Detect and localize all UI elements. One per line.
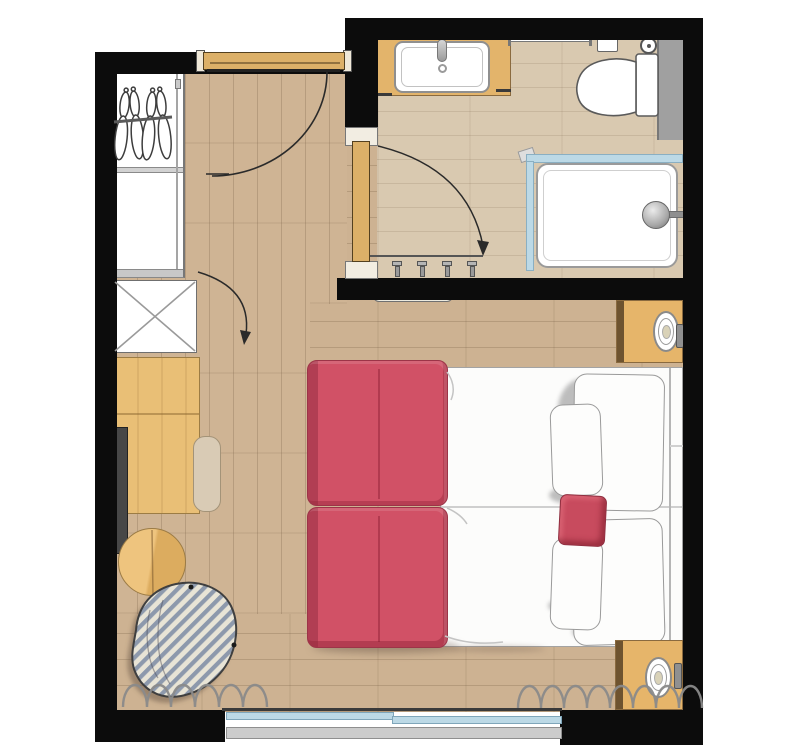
shower-glass-side (526, 161, 534, 271)
towel-hooks (392, 261, 487, 279)
wall-bathroom-bottom (337, 278, 703, 300)
lamp-core (654, 671, 663, 685)
window-pane-right (392, 716, 562, 724)
hook-stem (445, 266, 450, 277)
partition-wall (657, 33, 683, 140)
desk-chair (193, 436, 221, 512)
sofa-seam (378, 516, 380, 642)
headboard-line (669, 368, 671, 646)
basin-drain (438, 64, 447, 73)
tv-screen (116, 427, 128, 554)
bed-foot-shadow (450, 646, 545, 652)
sofa-cushion-top (307, 360, 448, 506)
hook-stem (395, 266, 400, 277)
sofa-seam (378, 369, 380, 499)
vanity-shadow (496, 89, 511, 92)
vanity-shadow (378, 93, 392, 96)
roll-axis-dot (647, 44, 651, 48)
wall-left (95, 52, 117, 742)
pillow-small-bottom (549, 537, 603, 631)
bedside-switch (674, 663, 682, 689)
entry-door-panel-line (210, 62, 340, 64)
window-frame-line (222, 708, 562, 711)
wall-right (683, 18, 703, 745)
side-table (118, 528, 186, 596)
luggage-cabinet (113, 280, 197, 353)
shower-head (642, 201, 670, 229)
faucet (437, 39, 447, 62)
wardrobe-hinge (175, 79, 181, 89)
sofa-bench (307, 358, 450, 650)
window-sill (226, 727, 562, 739)
wall-bottom-left (95, 710, 225, 742)
wall-bathroom-top (345, 18, 703, 40)
bathroom-door-leaf (352, 141, 370, 262)
bathroom-door-closed-line (370, 255, 483, 257)
accent-cushion (558, 494, 608, 547)
sofa-cushion-bottom (307, 507, 448, 648)
lamp-core (662, 325, 671, 339)
wall-bottom-right (560, 710, 703, 745)
wardrobe (113, 62, 185, 278)
desk-seam (113, 413, 199, 415)
headboard-tick (670, 445, 683, 447)
wardrobe-side-line (176, 71, 178, 269)
entry-door-leaf (203, 52, 345, 70)
hook-stem (470, 266, 475, 277)
window-pane-left (226, 712, 394, 720)
nightstand-bottom (615, 640, 683, 710)
pillow-small-top (549, 403, 603, 497)
entry-door-edge (207, 69, 340, 72)
wardrobe-shelf-divider (114, 167, 183, 173)
floor-plan (0, 0, 800, 749)
hook-stem (420, 266, 425, 277)
wardrobe-bottom-frame (114, 269, 183, 277)
bathroom-door-jamb (345, 261, 378, 279)
nightstand-top (616, 300, 683, 363)
shower-glass-top (526, 154, 683, 163)
